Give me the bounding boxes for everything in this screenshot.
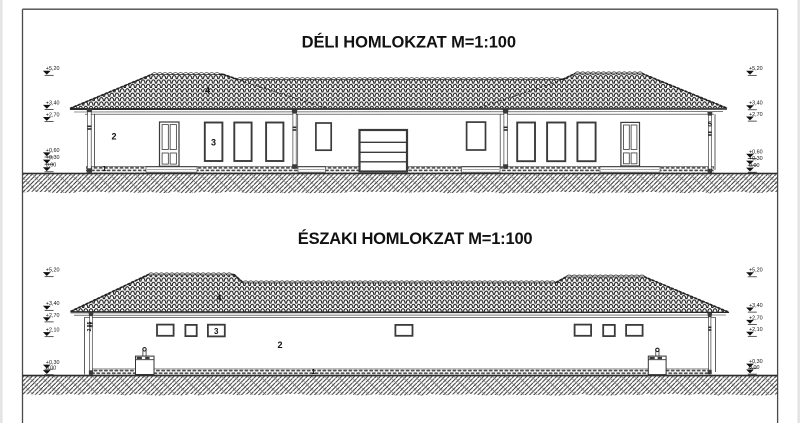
svg-text:3: 3 (214, 327, 219, 336)
svg-text:+2,70: +2,70 (46, 113, 60, 119)
svg-text:+3,40: +3,40 (749, 303, 763, 309)
svg-text:3: 3 (211, 138, 216, 148)
svg-text:+5,20: +5,20 (46, 268, 60, 274)
svg-text:+2,70: +2,70 (749, 112, 763, 118)
svg-text:0,00: 0,00 (749, 163, 760, 169)
svg-text:2: 2 (111, 132, 116, 142)
svg-text:+0,30: +0,30 (46, 155, 60, 161)
svg-text:+3,40: +3,40 (749, 101, 763, 107)
svg-text:0,00: 0,00 (46, 366, 57, 372)
svg-text:1: 1 (312, 369, 316, 376)
svg-text:+3,40: +3,40 (46, 100, 60, 106)
svg-text:+5,20: +5,20 (749, 66, 763, 72)
svg-text:+3,40: +3,40 (46, 301, 60, 307)
svg-text:+0,30: +0,30 (749, 156, 763, 162)
svg-text:0,00: 0,00 (46, 163, 57, 169)
svg-text:+5,20: +5,20 (46, 66, 60, 72)
svg-text:4: 4 (205, 86, 210, 96)
svg-text:+2,70: +2,70 (749, 315, 763, 321)
svg-text:+0,60: +0,60 (46, 148, 60, 154)
svg-text:+2,70: +2,70 (46, 313, 60, 319)
svg-text:1: 1 (103, 166, 107, 173)
svg-text:+2,10: +2,10 (749, 327, 763, 333)
svg-text:0,00: 0,00 (749, 365, 760, 371)
svg-text:+2,10: +2,10 (46, 328, 60, 334)
svg-text:ÉSZAKI HOMLOKZAT M=1:100: ÉSZAKI HOMLOKZAT M=1:100 (298, 229, 533, 248)
svg-text:2,85: 2,85 (87, 321, 93, 331)
svg-text:2: 2 (277, 340, 282, 350)
svg-text:+5,20: +5,20 (749, 268, 763, 274)
svg-text:4: 4 (216, 293, 221, 303)
svg-text:+0,60: +0,60 (749, 149, 763, 155)
svg-text:5: 5 (708, 120, 712, 129)
svg-text:DÉLI HOMLOKZAT M=1:100: DÉLI HOMLOKZAT M=1:100 (302, 33, 516, 52)
